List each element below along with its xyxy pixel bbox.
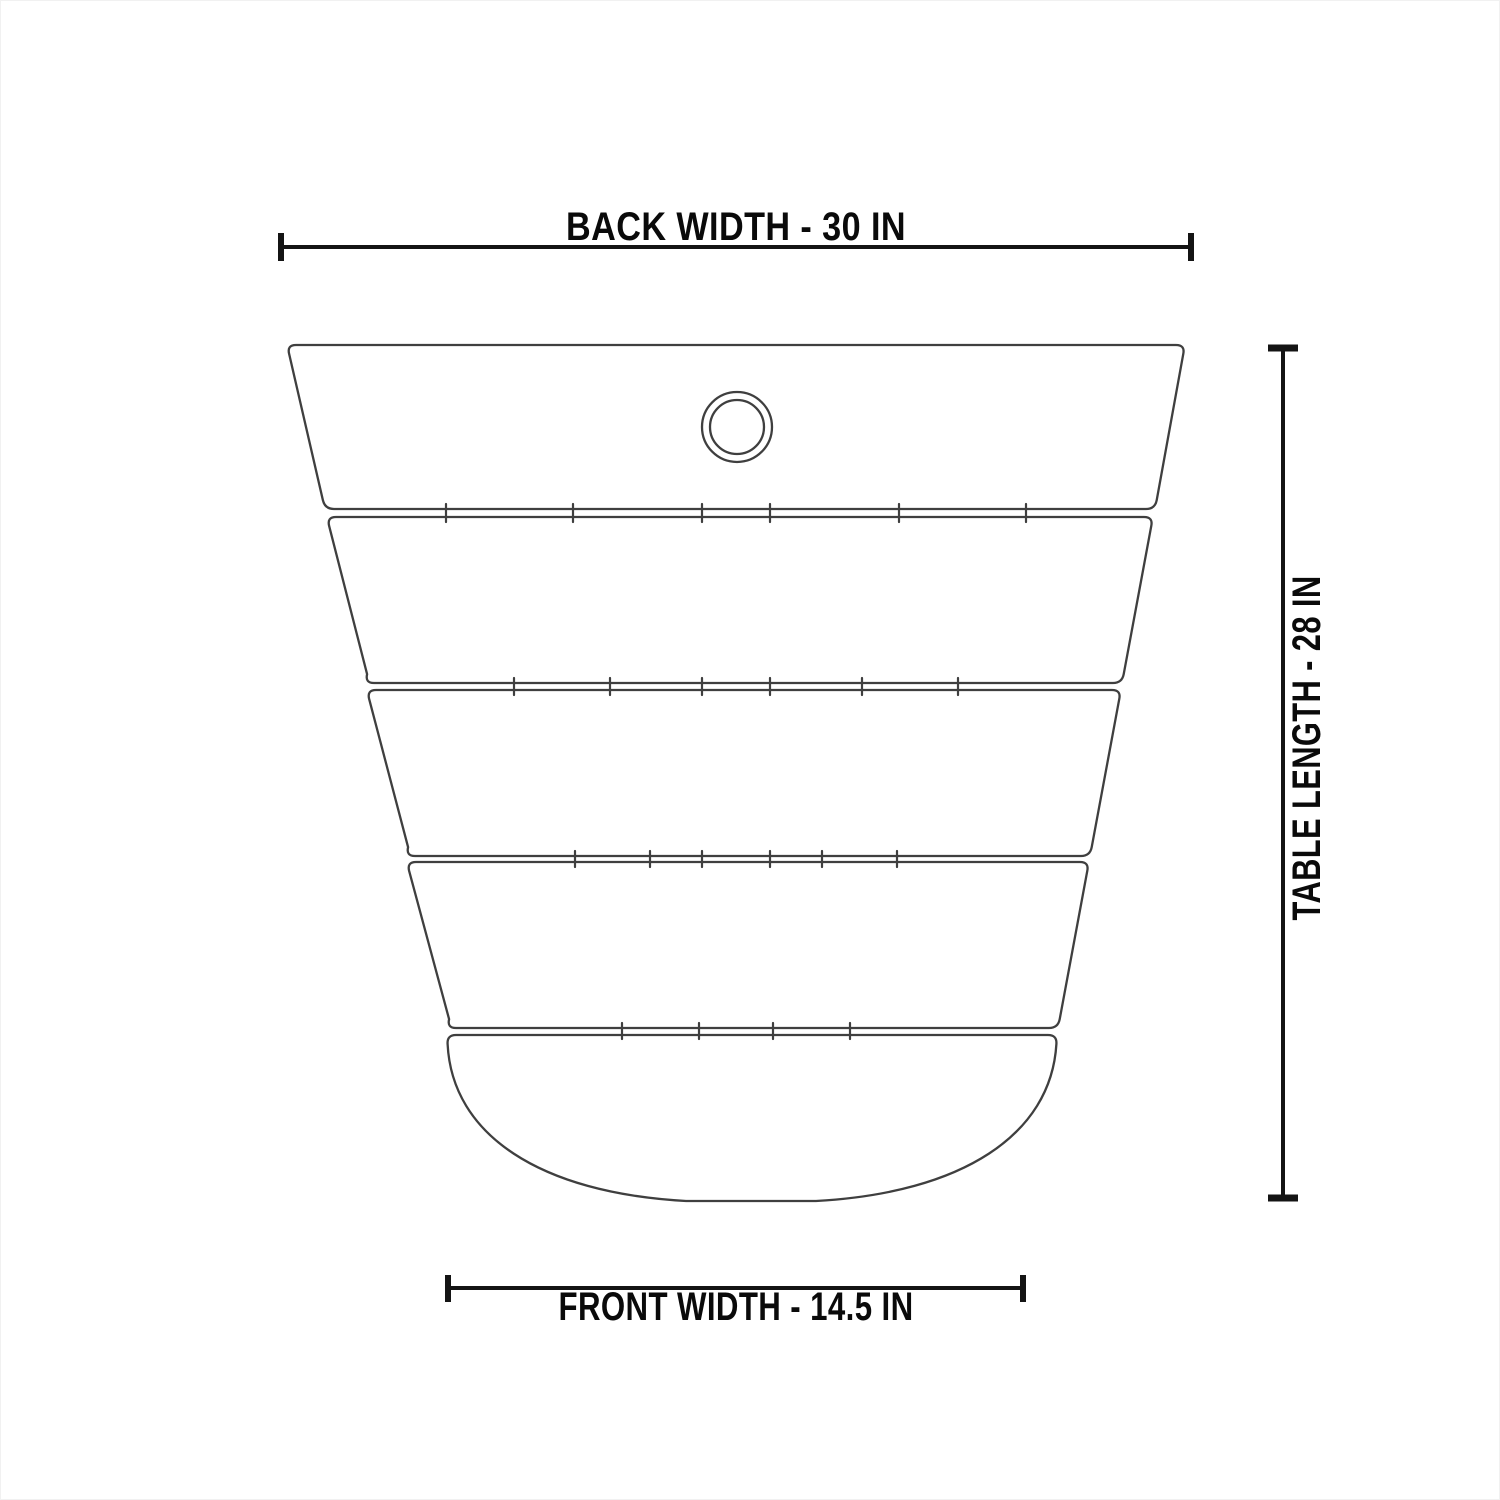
diagram-canvas: BACK WIDTH - 30 IN TABLE LENGTH - 28 IN … (0, 0, 1500, 1500)
back-width-label: BACK WIDTH - 30 IN (566, 205, 906, 249)
table-dimension-diagram: BACK WIDTH - 30 IN TABLE LENGTH - 28 IN … (0, 0, 1500, 1500)
front-width-label: FRONT WIDTH - 14.5 IN (559, 1285, 914, 1329)
table-length-label: TABLE LENGTH - 28 IN (1285, 576, 1329, 921)
